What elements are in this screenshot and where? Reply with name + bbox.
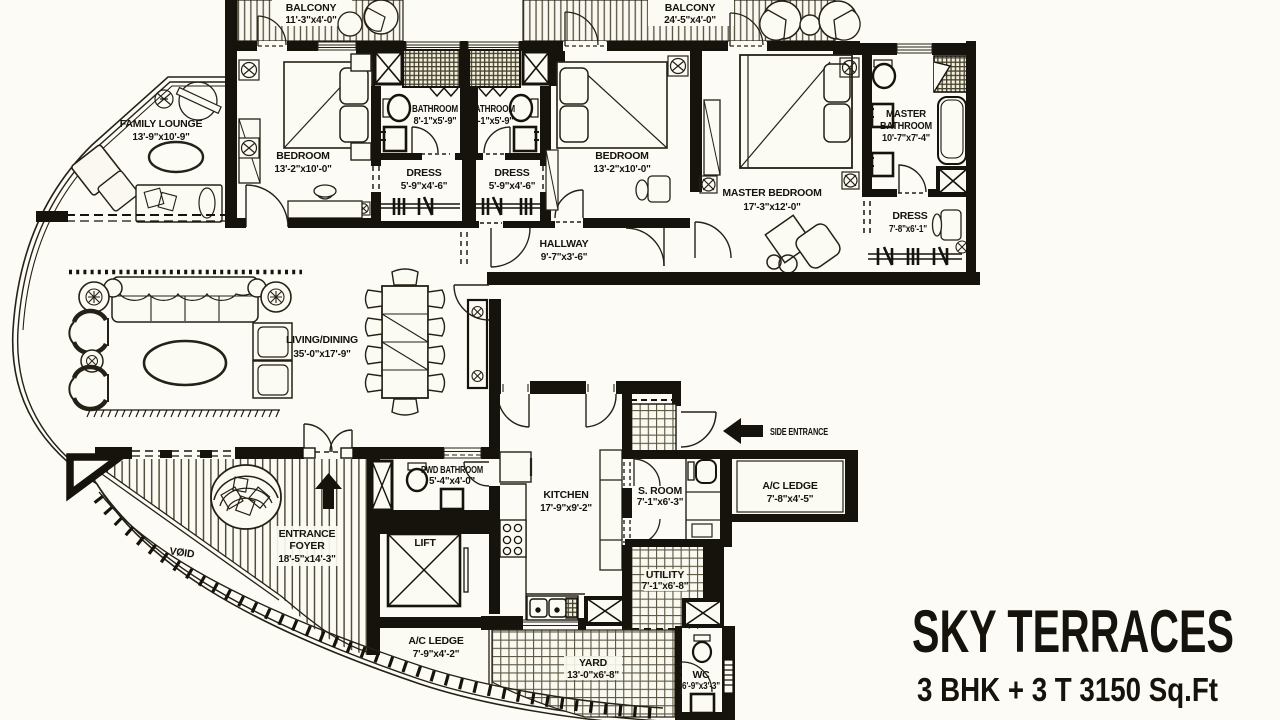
svg-text:ENTRANCE: ENTRANCE <box>279 528 336 540</box>
svg-text:LIFT: LIFT <box>414 537 436 549</box>
svg-text:BATHROOM: BATHROOM <box>412 103 458 115</box>
svg-text:8'-1"x5'-9": 8'-1"x5'-9" <box>471 116 514 127</box>
svg-text:UTILITY: UTILITY <box>646 569 684 581</box>
svg-text:BEDROOM: BEDROOM <box>595 150 649 162</box>
svg-text:13'-0"x6'-8": 13'-0"x6'-8" <box>567 670 619 681</box>
svg-text:MASTER: MASTER <box>886 108 927 120</box>
svg-text:DRESS: DRESS <box>892 210 927 222</box>
svg-text:PWD BATHROOM: PWD BATHROOM <box>421 464 483 476</box>
svg-text:A/C LEDGE: A/C LEDGE <box>408 635 464 647</box>
svg-text:7'-1"x6'-8": 7'-1"x6'-8" <box>642 581 689 592</box>
svg-text:BALCONY: BALCONY <box>665 2 716 14</box>
svg-text:7'-8"x6'-1": 7'-8"x6'-1" <box>889 224 927 235</box>
svg-text:13'-2"x10'-0": 13'-2"x10'-0" <box>274 164 332 175</box>
svg-text:BALCONY: BALCONY <box>286 2 337 14</box>
svg-text:17'-3"x12'-0": 17'-3"x12'-0" <box>743 202 801 213</box>
svg-text:35'-0"x17'-9": 35'-0"x17'-9" <box>293 349 351 360</box>
svg-text:BATHROOM: BATHROOM <box>880 120 932 132</box>
svg-text:18'-5"x14'-3": 18'-5"x14'-3" <box>278 554 336 565</box>
svg-text:KITCHEN: KITCHEN <box>543 489 588 501</box>
svg-text:7'-8"x4'-5": 7'-8"x4'-5" <box>767 494 814 505</box>
svg-text:5'-4"x4'-0": 5'-4"x4'-0" <box>429 476 475 487</box>
svg-text:10'-7"x7'-4": 10'-7"x7'-4" <box>882 133 930 144</box>
svg-text:13'-2"x10'-0": 13'-2"x10'-0" <box>593 164 651 175</box>
svg-text:YARD: YARD <box>579 657 608 669</box>
svg-text:BEDROOM: BEDROOM <box>276 150 330 162</box>
svg-text:6'-9"x3'-3": 6'-9"x3'-3" <box>682 681 720 692</box>
svg-text:FAMILY LOUNGE: FAMILY LOUNGE <box>120 118 203 130</box>
svg-text:SIDE ENTRANCE: SIDE ENTRANCE <box>770 426 828 438</box>
svg-text:7'-9"x4'-2": 7'-9"x4'-2" <box>413 649 460 660</box>
svg-text:BATHROOM: BATHROOM <box>469 103 515 115</box>
svg-text:DRESS: DRESS <box>406 167 441 179</box>
svg-text:3 BHK + 3 T 3150 Sq.Ft: 3 BHK + 3 T 3150 Sq.Ft <box>917 671 1218 708</box>
svg-text:HALLWAY: HALLWAY <box>540 238 589 250</box>
svg-text:MASTER BEDROOM: MASTER BEDROOM <box>722 187 822 199</box>
svg-text:5'-9"x4'-6": 5'-9"x4'-6" <box>401 181 448 192</box>
svg-text:24'-5"x4'-0": 24'-5"x4'-0" <box>664 15 716 26</box>
svg-text:8'-1"x5'-9": 8'-1"x5'-9" <box>414 116 457 127</box>
svg-text:FOYER: FOYER <box>289 540 325 552</box>
svg-text:7'-1"x6'-3": 7'-1"x6'-3" <box>637 497 684 508</box>
svg-text:LIVING/DINING: LIVING/DINING <box>286 334 358 346</box>
svg-text:11'-3"x4'-0": 11'-3"x4'-0" <box>285 15 337 26</box>
svg-text:5'-9"x4'-6": 5'-9"x4'-6" <box>489 181 536 192</box>
svg-text:9'-7"x3'-6": 9'-7"x3'-6" <box>541 252 588 263</box>
svg-text:S. ROOM: S. ROOM <box>638 485 683 497</box>
svg-text:17'-9"x9'-2": 17'-9"x9'-2" <box>540 503 592 514</box>
svg-text:SKY TERRACES: SKY TERRACES <box>912 598 1234 665</box>
svg-text:DRESS: DRESS <box>494 167 529 179</box>
svg-text:A/C LEDGE: A/C LEDGE <box>762 480 818 492</box>
